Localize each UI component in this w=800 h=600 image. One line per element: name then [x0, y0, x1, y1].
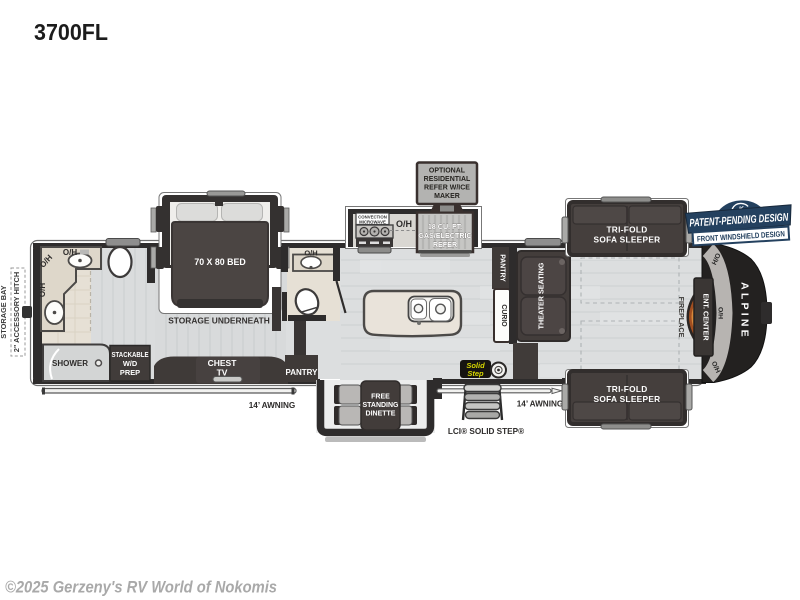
svg-text:MICROWAVE: MICROWAVE	[359, 219, 386, 224]
svg-text:3700FL: 3700FL	[34, 19, 108, 45]
svg-text:70 X 80 BED: 70 X 80 BED	[194, 257, 245, 267]
svg-text:TV: TV	[217, 368, 228, 378]
svg-text:GAS/ELECTRIC: GAS/ELECTRIC	[418, 231, 472, 240]
svg-text:SOFA SLEEPER: SOFA SLEEPER	[594, 235, 661, 245]
svg-text:O/H: O/H	[304, 249, 317, 258]
svg-text:W/D: W/D	[123, 359, 138, 368]
svg-text:OPTIONAL: OPTIONAL	[429, 168, 466, 175]
svg-text:THEATER SEATING: THEATER SEATING	[537, 262, 546, 329]
svg-text:REFER: REFER	[433, 240, 458, 249]
svg-text:©2025 Gerzeny's RV World of No: ©2025 Gerzeny's RV World of Nokomis	[5, 579, 277, 597]
svg-text:LCI® SOLID STEP®: LCI® SOLID STEP®	[448, 427, 524, 436]
svg-text:PREP: PREP	[120, 368, 140, 377]
svg-text:O/H: O/H	[396, 219, 412, 229]
svg-text:RESIDENTIAL: RESIDENTIAL	[424, 176, 471, 183]
svg-text:STANDING: STANDING	[362, 402, 399, 409]
svg-text:CHEST: CHEST	[208, 358, 238, 368]
svg-text:O/H: O/H	[63, 248, 77, 257]
svg-text:STORAGE UNDERNEATH: STORAGE UNDERNEATH	[168, 316, 270, 326]
svg-text:DINETTE: DINETTE	[366, 411, 396, 418]
svg-text:CURIO: CURIO	[500, 304, 507, 327]
svg-text:PANTRY: PANTRY	[286, 368, 319, 377]
svg-text:FREE: FREE	[371, 394, 390, 401]
svg-text:STACKABLE: STACKABLE	[112, 350, 149, 359]
svg-text:STORAGE BAY: STORAGE BAY	[0, 285, 8, 338]
svg-text:O/H: O/H	[717, 307, 724, 319]
svg-text:TRI-FOLD: TRI-FOLD	[606, 384, 647, 394]
svg-text:ENT. CENTER: ENT. CENTER	[702, 293, 711, 341]
svg-text:O/H: O/H	[38, 283, 47, 297]
svg-text:SOFA SLEEPER: SOFA SLEEPER	[594, 394, 661, 404]
svg-text:ALPINE: ALPINE	[739, 282, 751, 340]
svg-text:PANTRY: PANTRY	[499, 254, 506, 282]
svg-text:18 CU. FT.: 18 CU. FT.	[428, 222, 462, 231]
svg-text:TRI-FOLD: TRI-FOLD	[606, 225, 647, 235]
svg-text:14’ AWNING: 14’ AWNING	[517, 400, 564, 409]
svg-text:REFER W/ICE: REFER W/ICE	[424, 185, 470, 192]
svg-text:2" ACCESSORY HITCH: 2" ACCESSORY HITCH	[12, 272, 21, 352]
svg-text:MAKER: MAKER	[434, 193, 460, 200]
svg-text:SHOWER: SHOWER	[52, 359, 88, 368]
svg-text:Step: Step	[467, 369, 484, 378]
svg-text:FIREPLACE: FIREPLACE	[677, 297, 686, 338]
svg-text:14’ AWNING: 14’ AWNING	[249, 401, 296, 410]
